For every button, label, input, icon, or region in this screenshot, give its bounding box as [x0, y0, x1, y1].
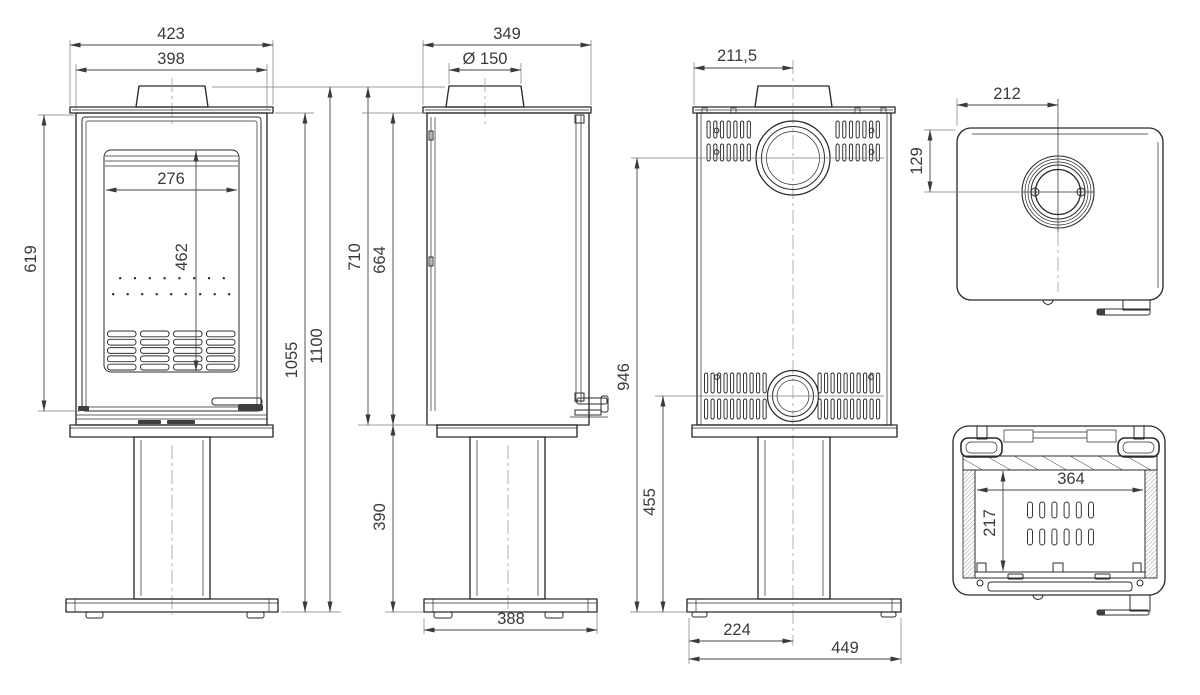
dim-firebox-width: 364 — [1057, 470, 1085, 488]
dim-glass-height: 462 — [173, 243, 191, 271]
section-floor-details — [963, 563, 1157, 591]
dim-rear-base-center: 224 — [723, 621, 751, 639]
top-dimensions: 212 129 — [908, 85, 1058, 192]
side-dimensions: 349 Ø 150 710 664 390 388 — [346, 25, 597, 634]
dim-rear-intake-height: 455 — [641, 488, 659, 516]
rear-pedestal — [758, 437, 830, 599]
dim-front-body-height: 1055 — [283, 342, 301, 379]
rear-vents-top-left — [707, 121, 750, 161]
section-right-wall — [1145, 470, 1157, 578]
dim-flue-diameter: Ø 150 — [463, 50, 508, 68]
dim-side-body-top-height: 664 — [371, 246, 389, 274]
rear-view: 211,5 946 455 224 449 — [615, 47, 901, 664]
dim-top-flue-from-rear: 129 — [908, 147, 926, 175]
section-handle — [1033, 595, 1150, 615]
side-bottom-band — [437, 425, 577, 437]
technical-drawing-page: 423 398 619 276 462 1055 1100 — [0, 0, 1200, 695]
section-left-wall — [963, 470, 975, 578]
rear-base — [687, 599, 901, 617]
dim-rear-flue-offset: 211,5 — [717, 47, 757, 65]
side-body — [427, 113, 589, 425]
dim-front-total-height: 1100 — [308, 328, 326, 363]
front-pedestal — [134, 437, 210, 615]
front-top-plate — [70, 107, 273, 113]
section-dimensions: 364 217 — [977, 470, 1143, 571]
firebox-floor-slots — [1028, 502, 1094, 545]
top-handle — [1043, 300, 1150, 315]
rear-flue-collar — [755, 86, 832, 107]
rear-bottom-band — [692, 425, 897, 437]
dim-glass-width: 276 — [157, 170, 185, 188]
dim-rear-base-width: 449 — [831, 639, 859, 657]
firebox-section-view: 364 217 — [953, 426, 1165, 615]
side-view: 349 Ø 150 710 664 390 388 — [346, 25, 608, 634]
rear-top-plate — [693, 107, 895, 113]
section-top-details — [977, 426, 1144, 442]
dim-firebox-depth: 217 — [981, 509, 999, 537]
dim-rear-flue-height: 946 — [615, 363, 633, 391]
dim-front-door-height: 619 — [22, 245, 40, 273]
front-door-handle — [78, 398, 263, 411]
glass-air-holes-row2 — [112, 293, 230, 295]
dim-pedestal-height: 390 — [371, 503, 389, 531]
dim-base-depth: 388 — [497, 610, 525, 628]
glass-air-holes-row1 — [119, 277, 225, 279]
dim-top-flue-from-front: 212 — [993, 85, 1021, 103]
side-pedestal — [470, 437, 545, 615]
side-door-edge — [429, 117, 435, 411]
stove-dimension-drawing: 423 398 619 276 462 1055 1100 — [0, 0, 1200, 695]
front-louver-grille — [108, 331, 236, 370]
front-body — [76, 113, 267, 425]
top-view: 212 129 — [908, 85, 1163, 315]
screw-hole — [869, 375, 874, 380]
dim-side-depth: 349 — [493, 25, 521, 43]
dim-front-total-width: 423 — [157, 25, 185, 43]
dim-side-top-height: 710 — [346, 243, 364, 271]
side-rear-edge — [575, 115, 584, 403]
section-brackets — [961, 438, 1159, 457]
screw-hole — [715, 375, 720, 380]
section-rear-wall-hatch — [963, 456, 1157, 470]
front-bottom-band — [70, 415, 273, 437]
dim-front-body-width: 398 — [157, 50, 185, 68]
side-top-plate — [423, 107, 591, 113]
rear-vents-top-right — [836, 121, 879, 161]
rear-body — [697, 113, 891, 425]
